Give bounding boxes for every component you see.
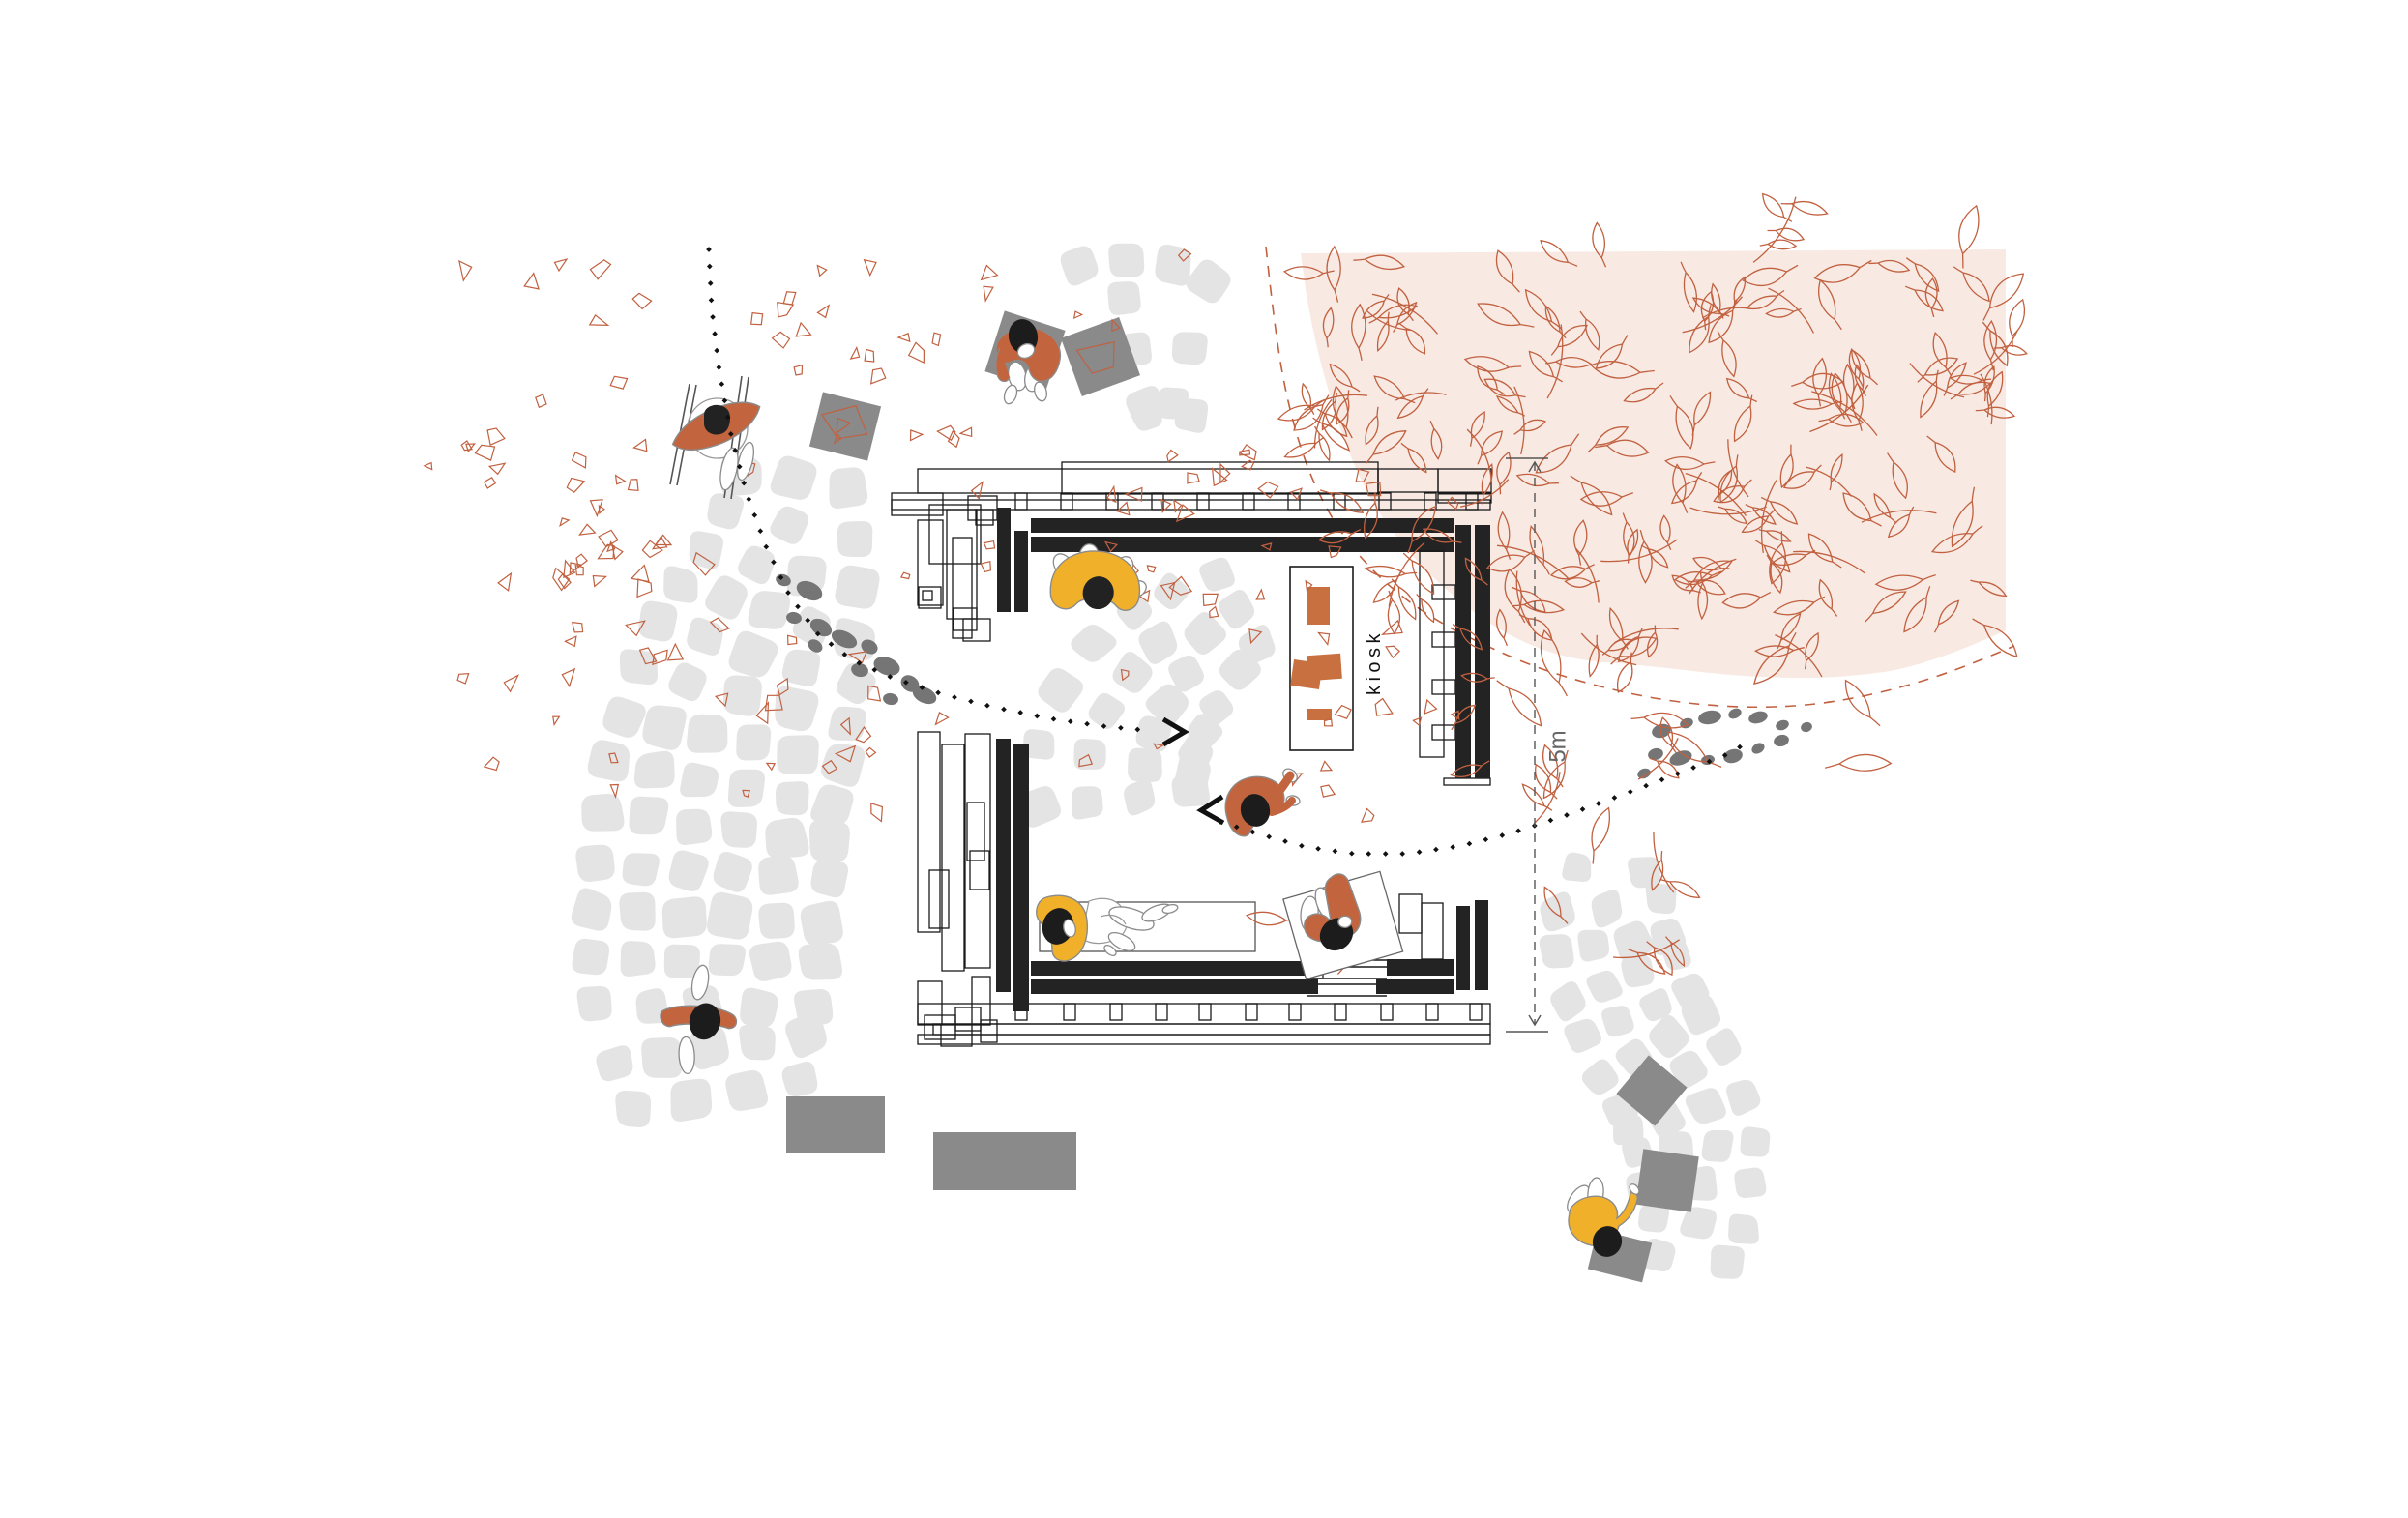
svg-text:kiosk: kiosk [1364,629,1385,695]
svg-text:5m: 5m [1545,730,1571,762]
